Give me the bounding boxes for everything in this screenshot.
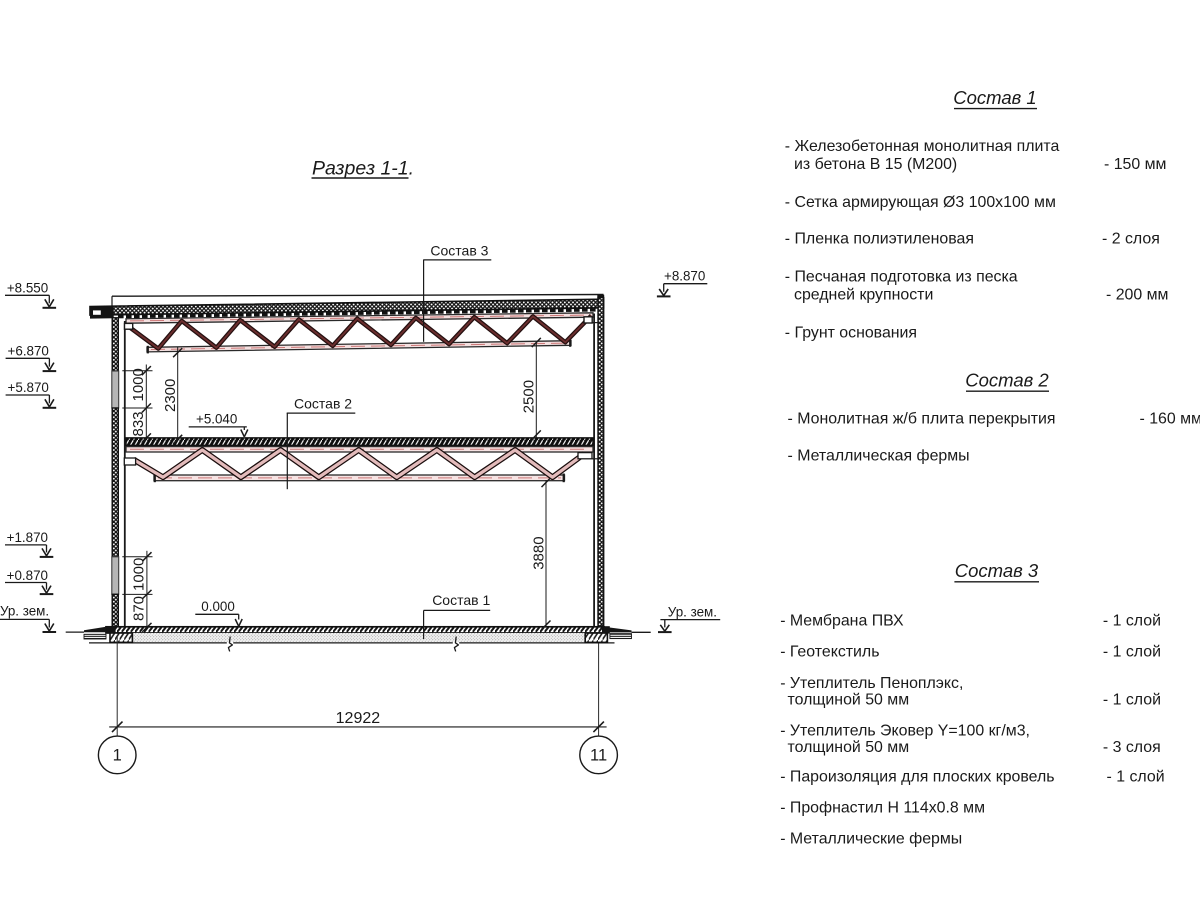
svg-text:11: 11 <box>590 747 607 765</box>
svg-text:Ур. зем.: Ур. зем. <box>668 604 717 619</box>
svg-text:- Металлические фермы: - Металлические фермы <box>780 831 962 848</box>
svg-text:0.000: 0.000 <box>201 599 235 614</box>
svg-text:+8.550: +8.550 <box>7 281 48 296</box>
svg-text:- Утеплитель Пеноплэкс,: - Утеплитель Пеноплэкс, <box>780 675 963 692</box>
svg-text:Состав 2: Состав 2 <box>965 370 1049 391</box>
svg-text:870: 870 <box>131 596 148 621</box>
svg-text:- Пароизоляция для плоских кро: - Пароизоляция для плоских кровель <box>780 768 1054 785</box>
svg-text:- Песчаная подготовка из песка: - Песчаная подготовка из песка <box>785 269 1018 286</box>
svg-text:Состав 1: Состав 1 <box>432 592 490 608</box>
svg-text:- Пленка полиэтиленовая: - Пленка полиэтиленовая <box>785 231 974 248</box>
svg-text:Ур. зем.: Ур. зем. <box>0 603 49 618</box>
svg-text:1000: 1000 <box>130 368 147 401</box>
svg-text:+6.870: +6.870 <box>8 343 49 358</box>
svg-text:- 1 слой: - 1 слой <box>1107 768 1165 785</box>
svg-text:- Профнастил Н 114х0.8 мм: - Профнастил Н 114х0.8 мм <box>780 800 985 817</box>
svg-text:Состав 3: Состав 3 <box>955 560 1039 581</box>
svg-text:+5.870: +5.870 <box>8 380 49 395</box>
svg-text:Разрез 1-1.: Разрез 1-1. <box>312 158 414 180</box>
svg-text:- 3 слоя: - 3 слоя <box>1103 739 1161 756</box>
svg-text:- Сетка армирующая Ø3 100х100: - Сетка армирующая Ø3 100х100 мм <box>785 194 1056 211</box>
svg-text:2300: 2300 <box>162 379 179 412</box>
svg-text:- 150 мм: - 150 мм <box>1104 156 1166 173</box>
svg-text:- 1 слой: - 1 слой <box>1103 613 1161 630</box>
svg-text:из бетона В 15 (М200): из бетона В 15 (М200) <box>794 156 957 173</box>
svg-text:толщиной 50 мм: толщиной 50 мм <box>788 691 910 708</box>
svg-text:833: 833 <box>130 411 147 436</box>
svg-text:+1.870: +1.870 <box>7 530 48 545</box>
svg-text:3880: 3880 <box>531 536 548 569</box>
svg-text:- 1 слой: - 1 слой <box>1103 691 1161 708</box>
svg-text:- Мембрана ПВХ: - Мембрана ПВХ <box>780 613 904 630</box>
svg-text:- Железобетонная монолитная п: - Железобетонная монолитная плита <box>785 138 1060 155</box>
svg-text:- 160 мм: - 160 мм <box>1140 411 1200 428</box>
svg-text:2500: 2500 <box>521 380 538 413</box>
svg-text:- Грунт основания: - Грунт основания <box>785 325 917 342</box>
svg-text:- Монолитная ж/б плита перекры: - Монолитная ж/б плита перекрытия <box>788 411 1056 428</box>
svg-text:Состав 1: Состав 1 <box>953 87 1036 108</box>
svg-text:- Утеплитель Эковер Y=100 кг/м: - Утеплитель Эковер Y=100 кг/м3, <box>780 723 1030 740</box>
svg-text:средней крупности: средней крупности <box>794 287 933 304</box>
svg-text:+5.040: +5.040 <box>196 411 237 426</box>
svg-text:- 2 слоя: - 2 слоя <box>1102 231 1160 248</box>
svg-text:- Геотекстиль: - Геотекстиль <box>780 644 879 661</box>
svg-text:+8.870: +8.870 <box>664 269 705 284</box>
svg-text:- 1 слой: - 1 слой <box>1103 644 1161 661</box>
svg-text:12922: 12922 <box>336 710 381 727</box>
svg-text:Состав 3: Состав 3 <box>430 242 488 258</box>
svg-text:1000: 1000 <box>131 558 148 591</box>
svg-text:+0.870: +0.870 <box>7 568 48 583</box>
svg-text:- Металлическая фермы: - Металлическая фермы <box>788 448 970 465</box>
svg-text:толщиной 50 мм: толщиной 50 мм <box>788 739 910 756</box>
svg-text:Состав 2: Состав 2 <box>294 395 352 411</box>
svg-text:1: 1 <box>113 747 122 765</box>
svg-text:- 200 мм: - 200 мм <box>1106 287 1168 304</box>
